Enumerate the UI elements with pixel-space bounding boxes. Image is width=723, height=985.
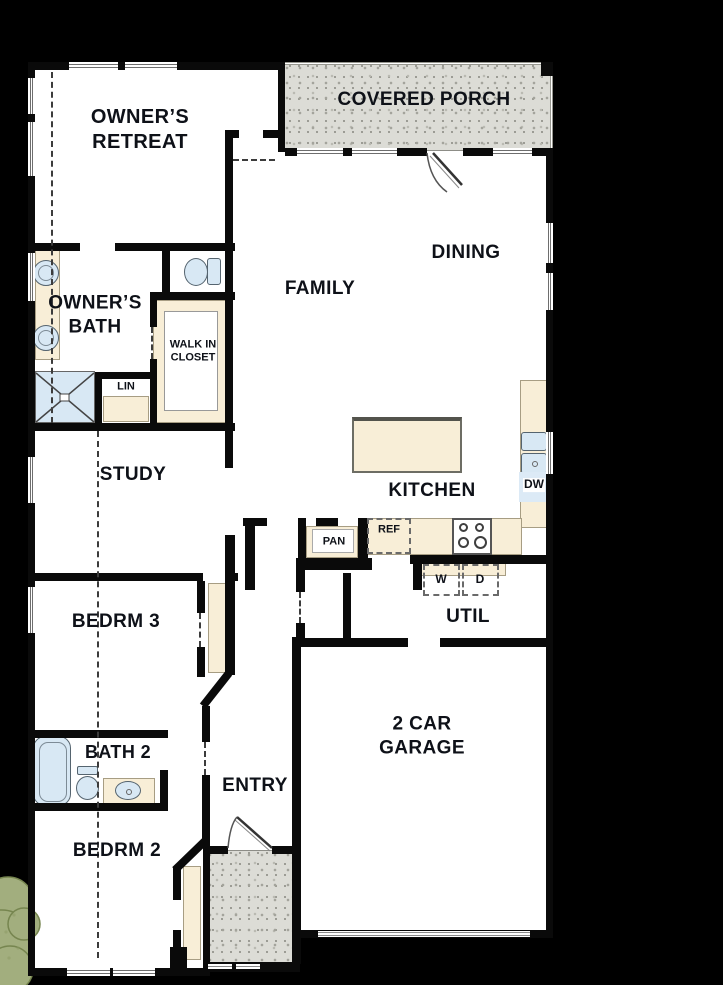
room-label-dining: DINING	[432, 241, 501, 265]
room-label-bedroom3: BEDRM 3	[72, 610, 160, 634]
room-label-lin: LIN	[117, 381, 135, 394]
room-label-bedroom2: BEDRM 2	[73, 839, 161, 863]
room-label-owners-retreat: OWNER’S RETREAT	[91, 105, 189, 155]
room-label-bath2: BATH 2	[85, 741, 151, 764]
fixture-label-washer: W	[435, 573, 446, 587]
room-label-kitchen: KITCHEN	[388, 479, 475, 503]
floor-plan: OWNER’S RETREAT COVERED PORCH DINING FAM…	[0, 0, 723, 985]
room-label-covered-porch: COVERED PORCH	[337, 88, 510, 112]
fixture-label-dishwasher: DW	[523, 478, 545, 492]
room-label-garage: 2 CAR GARAGE	[379, 712, 465, 760]
room-label-owners-bath: OWNER’S BATH	[48, 291, 142, 339]
fixture-label-dryer: D	[476, 573, 485, 587]
room-label-utility: UTIL	[446, 605, 490, 629]
room-label-family: FAMILY	[285, 277, 355, 301]
fixture-label-refrigerator: REF	[378, 524, 400, 537]
room-label-walk-in-closet: WALK IN CLOSET	[170, 338, 216, 363]
fixture-label-pantry: PAN	[323, 536, 345, 549]
room-label-entry: ENTRY	[222, 774, 288, 798]
room-label-study: STUDY	[100, 463, 166, 487]
